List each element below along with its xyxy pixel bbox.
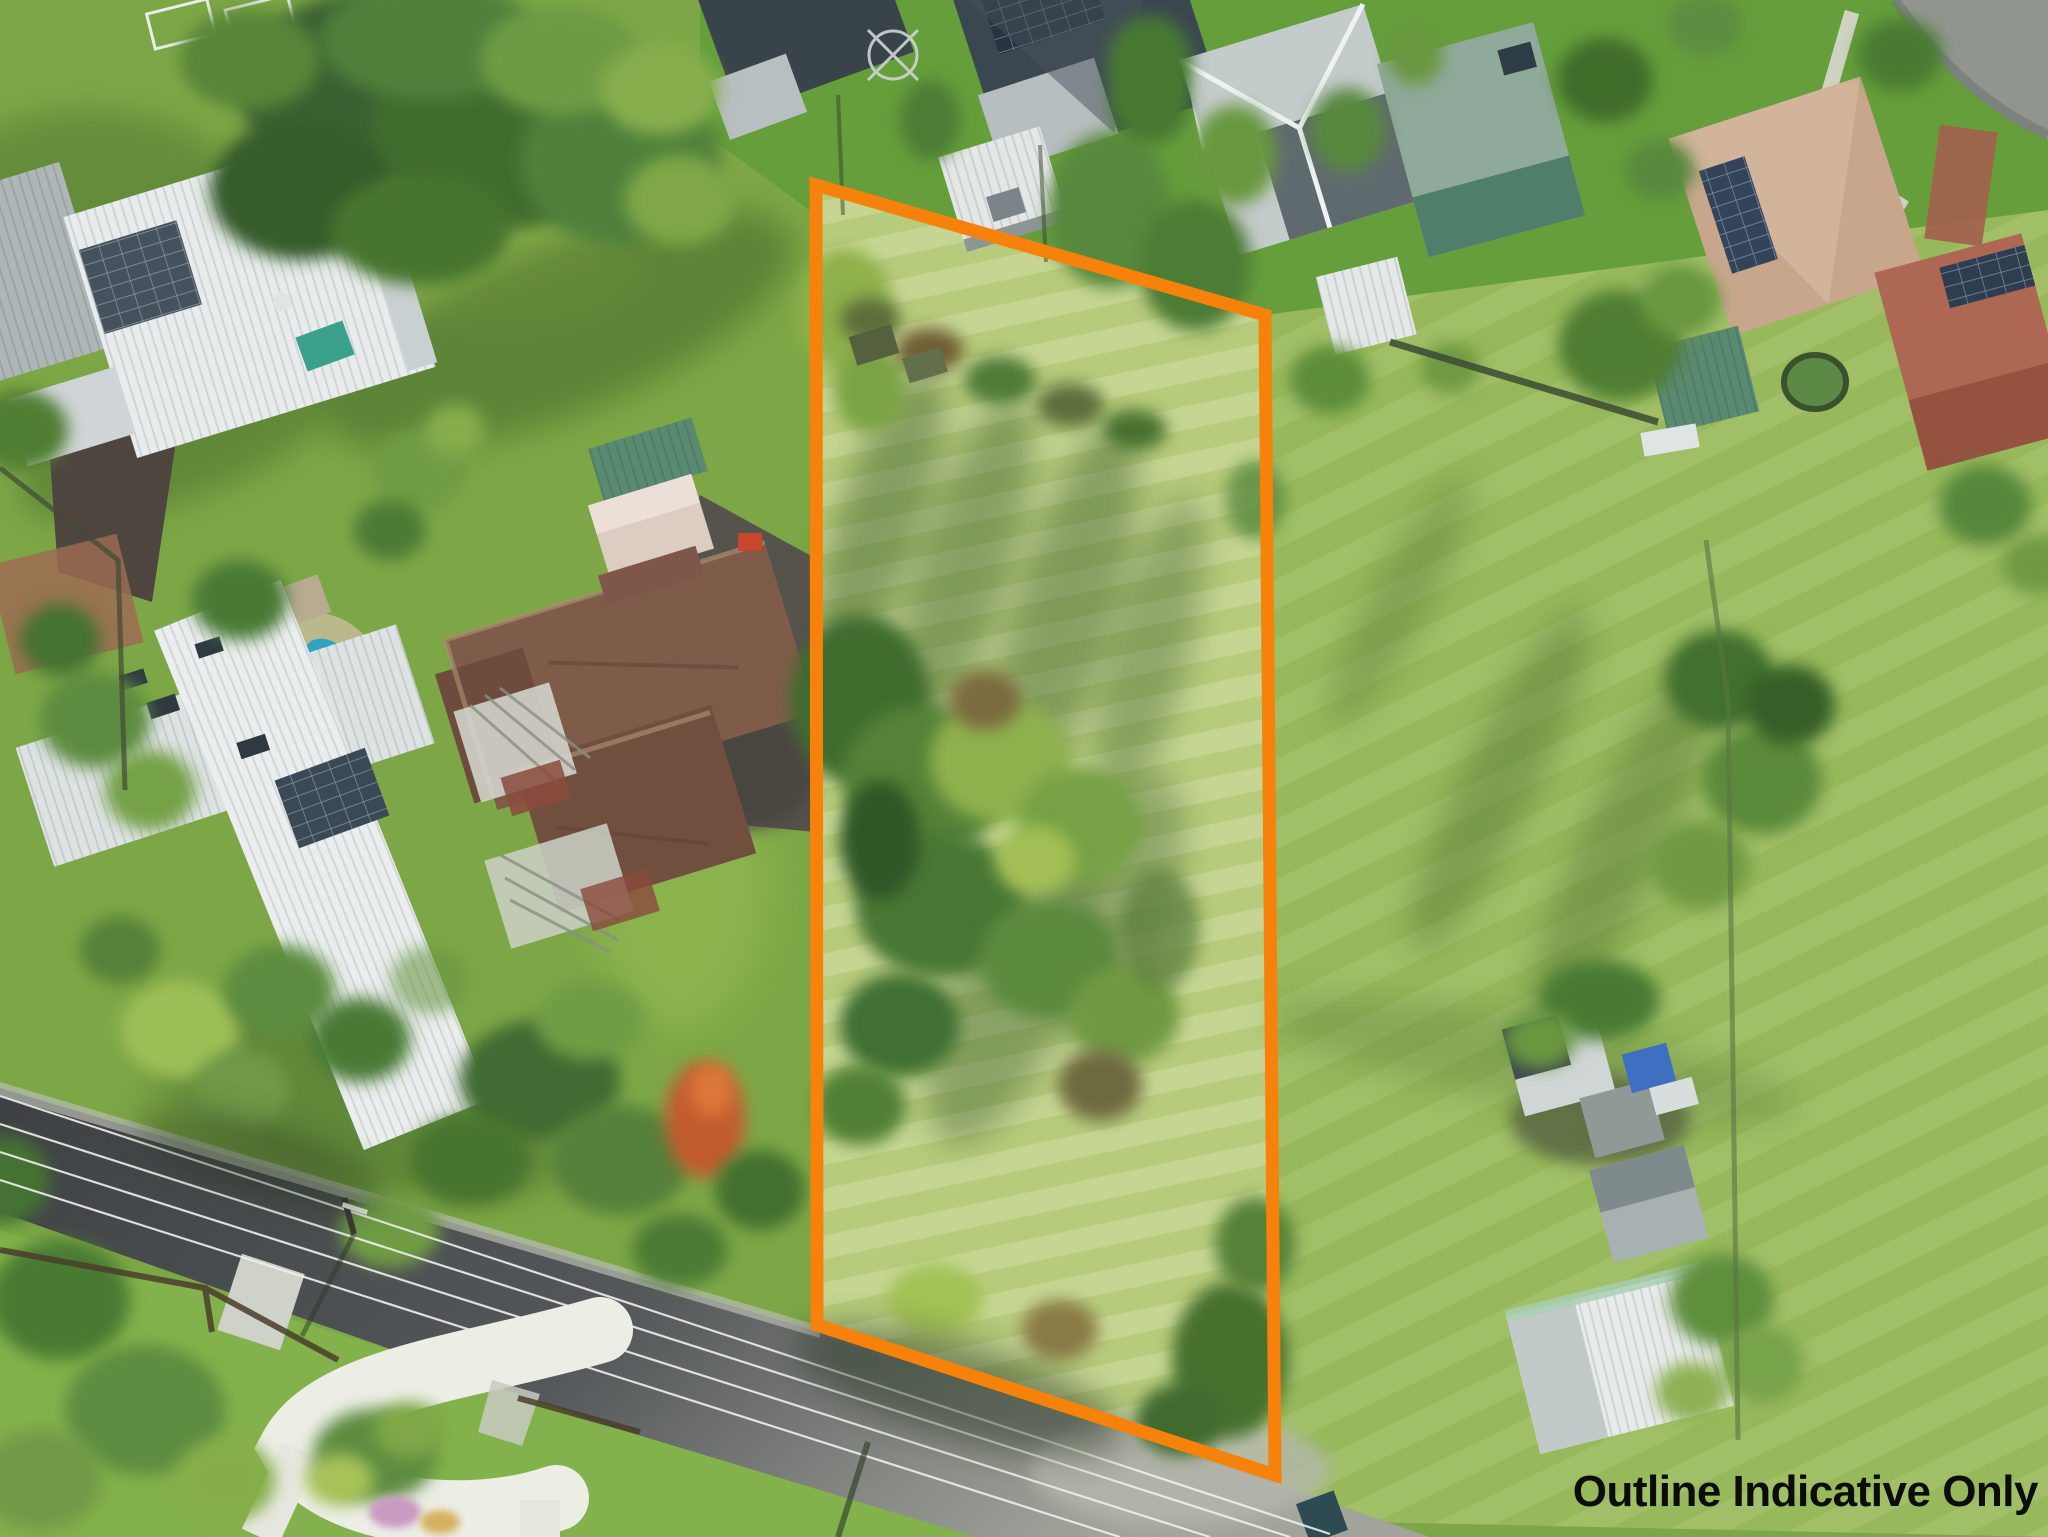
annotation-text: Outline Indicative Only: [1573, 1467, 2039, 1516]
satellite-dish: [273, 293, 291, 311]
flowers: [420, 1510, 460, 1534]
aerial-photo-canvas: Outline Indicative Only: [0, 0, 2048, 1537]
flowers: [369, 1496, 421, 1528]
trampoline: [1784, 355, 1846, 409]
aerial-photo: Outline Indicative Only: [0, 0, 2048, 1537]
flame-tree-bright: [690, 1064, 734, 1116]
red-object: [738, 533, 762, 551]
